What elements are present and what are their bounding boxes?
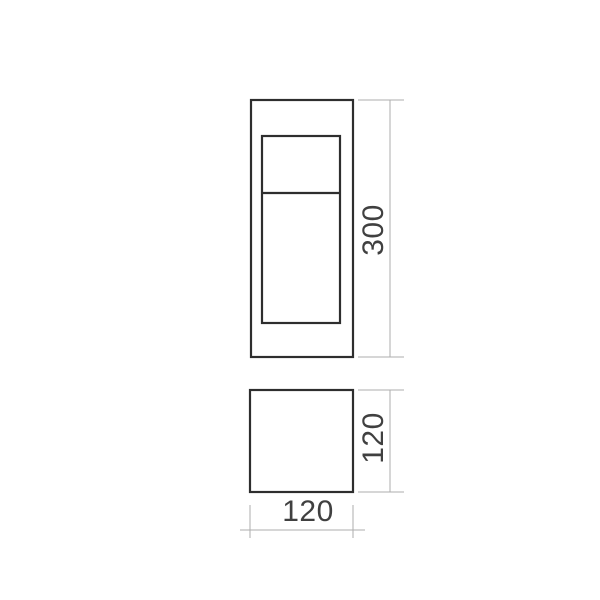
bottom-view-outline [250, 390, 353, 492]
technical-drawing: 300 120 120 [0, 0, 600, 600]
bottom-view-width-dimension: 120 [240, 495, 365, 538]
width-dimension-label: 120 [282, 495, 334, 528]
bottom-view-depth-dimension: 120 [357, 390, 404, 492]
front-view-outline [251, 100, 353, 357]
front-view [251, 100, 353, 357]
drawing-canvas: 300 120 120 [0, 0, 600, 600]
height-dimension-label: 300 [357, 204, 390, 256]
bottom-view [250, 390, 353, 492]
depth-dimension-label: 120 [357, 412, 390, 464]
front-view-height-dimension: 300 [357, 100, 404, 357]
front-view-panel-outline [262, 136, 340, 323]
